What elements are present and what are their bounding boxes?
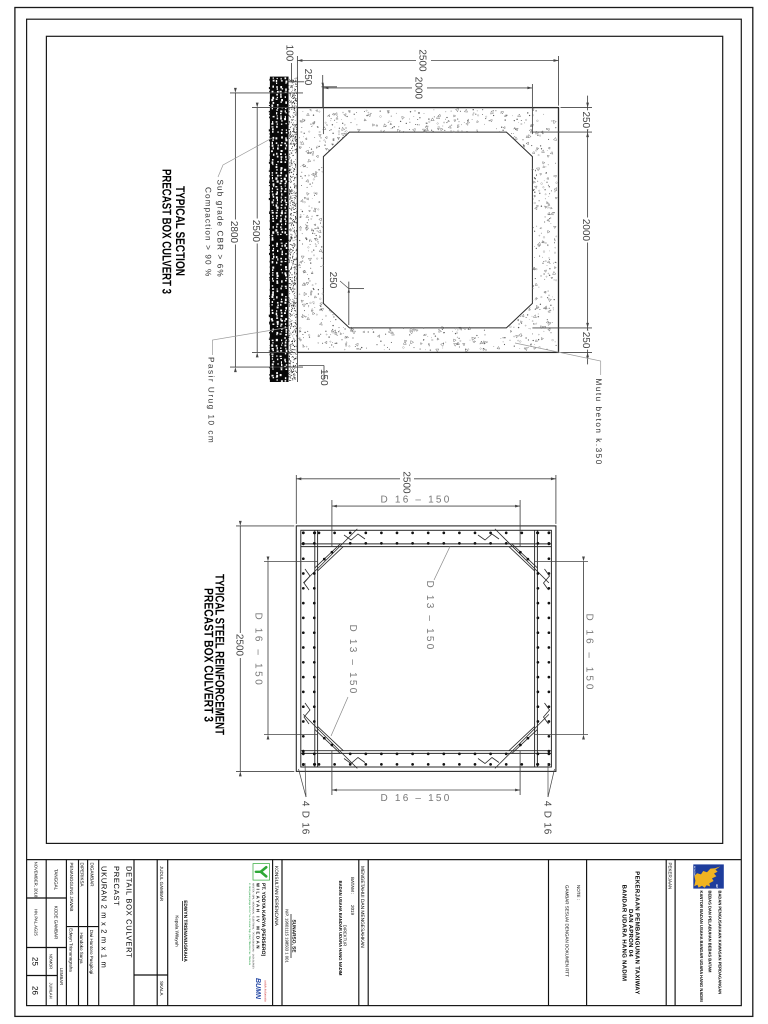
svg-text:PRECAST BOX CULVERT 3: PRECAST BOX CULVERT 3 [160, 169, 174, 294]
svg-text:250: 250 [580, 111, 591, 128]
svg-text:2000: 2000 [413, 77, 424, 100]
svg-text:PENANGGUNG JAWAB: PENANGGUNG JAWAB [69, 863, 74, 912]
svg-text:2500: 2500 [250, 220, 261, 243]
svg-text:100: 100 [284, 45, 295, 62]
svg-text:D 16 – 150: D 16 – 150 [381, 495, 452, 506]
svg-text:JUMLAH: JUMLAH [49, 982, 54, 998]
svg-text:2000: 2000 [580, 219, 591, 242]
svg-text:BANDAR UDARA HANG NADIM: BANDAR UDARA HANG NADIM [621, 885, 628, 982]
svg-text:D 13 – 150: D 13 – 150 [424, 581, 435, 652]
svg-text:DAN APRON 04: DAN APRON 04 [627, 909, 634, 957]
svg-text:2019: 2019 [350, 905, 355, 916]
svg-text:DIGAMBAR: DIGAMBAR [90, 863, 95, 888]
svg-text:PRECAST: PRECAST [112, 866, 121, 906]
svg-text:LEMBAR: LEMBAR [59, 968, 64, 985]
svg-text:250: 250 [327, 272, 338, 289]
svg-text:PRECAST BOX CULVERT 3: PRECAST BOX CULVERT 3 [202, 588, 216, 722]
svg-text:MENGETAHUI DAN MENGESAHKAN: MENGETAHUI DAN MENGESAHKAN [359, 866, 365, 948]
svg-text:BP: BP [715, 884, 718, 888]
svg-text:JUDUL GAMBAR: JUDUL GAMBAR [159, 866, 164, 902]
svg-text:BUMN: BUMN [254, 978, 261, 1000]
svg-text:DETAIL BOX CULVERT: DETAIL BOX CULVERT [125, 866, 134, 958]
svg-text:SUNARSO, SE: SUNARSO, SE [291, 919, 297, 953]
svg-text:NOVEMBER, 2018: NOVEMBER, 2018 [34, 862, 39, 898]
svg-text:BADAN USAHA BANDAR UDARA HANG: BADAN USAHA BANDAR UDARA HANG NADIM [338, 881, 343, 976]
svg-text:ARSITEK - SIPIL - MEKANIKAL -: ARSITEK - SIPIL - MEKANIKAL - ELEKTRIKAL… [251, 883, 254, 969]
svg-text:TYPICAL SECTION: TYPICAL SECTION [173, 186, 187, 276]
svg-text:25: 25 [31, 957, 40, 966]
svg-text:NOMOR: NOMOR [49, 954, 54, 969]
svg-text:Mutu beton k.350: Mutu beton k.350 [594, 379, 603, 466]
svg-text:PEKERJAAN PEMBANGUNAN TAXIWAY: PEKERJAAN PEMBANGUNAN TAXIWAY [634, 871, 641, 994]
svg-text:EDWYN TRISNANUGRAHA: EDWYN TRISNANUGRAHA [182, 900, 188, 962]
svg-text:BADAN PENGUSAHAAN KAWASAN PER: BADAN PENGUSAHAAN KAWASAN PERDAGANGAN [718, 891, 723, 995]
svg-text:PT. YODYA KARYA (PERSERO): PT. YODYA KARYA (PERSERO) [260, 883, 266, 957]
svg-text:2500: 2500 [401, 471, 412, 494]
svg-text:250: 250 [302, 69, 313, 86]
svg-text:NOTE :: NOTE : [576, 885, 581, 900]
svg-text:D 13 – 150: D 13 – 150 [347, 625, 358, 696]
svg-text:Compaction > 90 %: Compaction > 90 % [204, 187, 213, 277]
svg-text:UKURAN 2 m x 2 m x 1 m: UKURAN 2 m x 2 m x 1 m [100, 866, 109, 969]
svg-text:SKALA: SKALA [159, 981, 164, 996]
svg-text:GAMBAR SESUAI DENGAN DOKUMEN R: GAMBAR SESUAI DENGAN DOKUMEN RTT [565, 885, 570, 977]
svg-text:Dwi Hantoro Pusgitogi: Dwi Hantoro Pusgitogi [89, 930, 94, 975]
svg-text:Jl. Sisingamangaraja Km 5,7 No: Jl. Sisingamangaraja Km 5,7 No. 9 Medan … [248, 883, 251, 966]
svg-text:KANTOR BADAN USAHA BANDAR UDAR: KANTOR BADAN USAHA BANDAR UDARA HANG NAD… [699, 891, 704, 1003]
svg-text:4 D 16: 4 D 16 [300, 801, 311, 835]
svg-text:BATAM :: BATAM : [350, 877, 355, 894]
svg-text:Pasir Urug 10 cm: Pasir Urug 10 cm [207, 357, 216, 444]
svg-text:D 16 – 150: D 16 – 150 [584, 614, 595, 693]
svg-text:BEBAS DAN PELABUHAN BEBAS BATA: BEBAS DAN PELABUHAN BEBAS BATAM [708, 891, 713, 974]
svg-text:Kepala Wilayah: Kepala Wilayah [175, 915, 180, 947]
svg-text:Edwyn Trisnanugraha: Edwyn Trisnanugraha [69, 928, 74, 972]
svg-text:NIP. 19601115 198503 1 001: NIP. 19601115 198503 1 001 [285, 909, 290, 963]
svg-text:26: 26 [31, 986, 40, 995]
svg-text:4 D 16: 4 D 16 [542, 801, 553, 835]
svg-text:untuk Indonesia: untuk Indonesia [264, 980, 268, 1002]
svg-text:Sub grade CBR > 6%: Sub grade CBR > 6% [216, 180, 225, 278]
svg-text:KONSULTAN PERENCANA: KONSULTAN PERENCANA [273, 866, 279, 927]
svg-text:KODE GAMBAR: KODE GAMBAR [54, 906, 59, 940]
svg-text:TANGGAL: TANGGAL [54, 869, 59, 891]
svg-text:D 16 – 150: D 16 – 150 [381, 793, 452, 804]
svg-text:PEKERJAAN: PEKERJAAN [667, 863, 672, 890]
svg-text:DIREKTUR: DIREKTUR [343, 925, 348, 946]
svg-text:D 16 – 150: D 16 – 150 [253, 613, 264, 688]
svg-text:Handoko Surya: Handoko Surya [79, 932, 84, 964]
svg-text:250: 250 [580, 332, 591, 349]
svg-text:HN.PAL.AG25: HN.PAL.AG25 [34, 909, 39, 936]
svg-text:150: 150 [318, 369, 329, 386]
svg-text:2500: 2500 [417, 49, 428, 72]
svg-text:DIPERIKSA: DIPERIKSA [80, 863, 85, 887]
svg-text:2500: 2500 [233, 634, 244, 657]
svg-text:2800: 2800 [228, 221, 239, 244]
svg-text:WILAYAH IV MEDAN: WILAYAH IV MEDAN [256, 883, 261, 950]
